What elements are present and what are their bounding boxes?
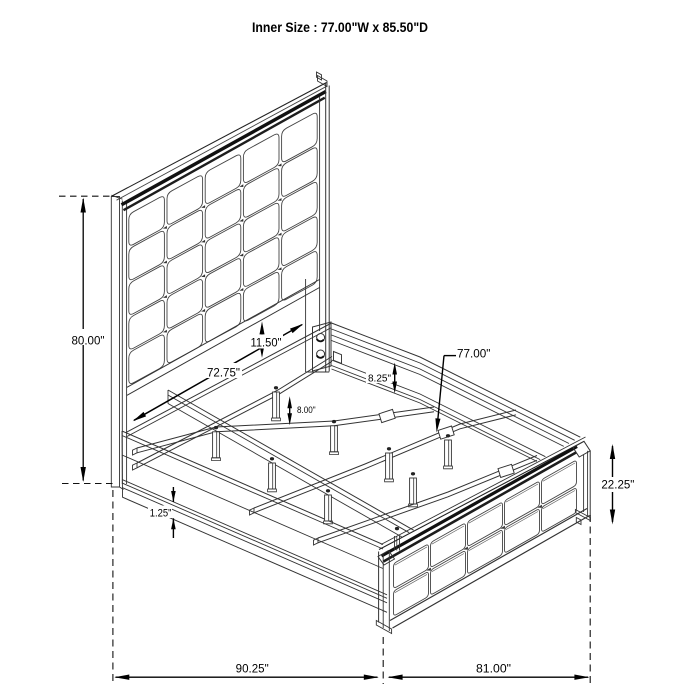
svg-text:77.00": 77.00": [457, 348, 490, 360]
svg-text:22.25": 22.25": [601, 479, 634, 491]
svg-text:80.00": 80.00": [72, 336, 105, 348]
svg-text:1.25": 1.25": [150, 508, 172, 520]
svg-text:72.75": 72.75": [207, 368, 240, 380]
svg-text:8.25": 8.25": [368, 374, 392, 385]
svg-text:11.50": 11.50": [251, 337, 282, 349]
svg-text:90.25": 90.25": [236, 663, 269, 675]
svg-text:8.00": 8.00": [297, 404, 316, 415]
svg-text:81.00": 81.00": [476, 663, 511, 675]
svg-text:Inner Size : 77.00"W x 85.50"D: Inner Size : 77.00"W x 85.50"D: [252, 20, 428, 36]
